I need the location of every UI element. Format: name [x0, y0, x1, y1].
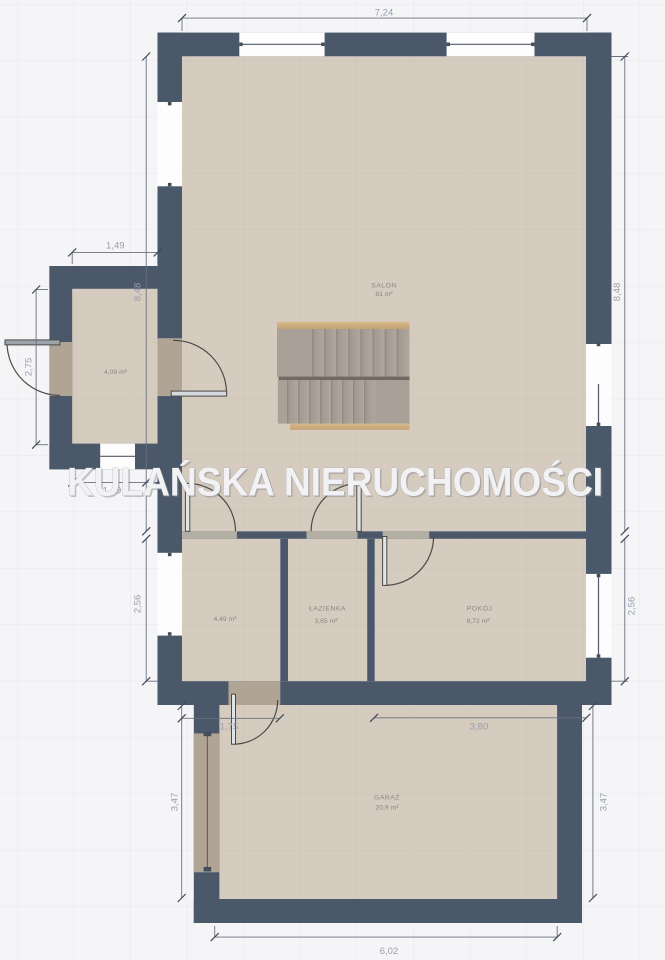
svg-text:POKÓJ: POKÓJ	[467, 604, 493, 613]
svg-text:9,72 m²: 9,72 m²	[466, 618, 490, 625]
svg-text:ŁAZIENKA: ŁAZIENKA	[309, 606, 346, 613]
svg-text:3,47: 3,47	[170, 793, 181, 812]
svg-text:2,56: 2,56	[627, 597, 638, 616]
svg-text:7,24: 7,24	[375, 8, 394, 19]
svg-text:4,09 m²: 4,09 m²	[104, 369, 128, 376]
svg-text:8,48: 8,48	[612, 283, 623, 302]
svg-text:3,80: 3,80	[470, 722, 489, 733]
svg-text:20,9 m²: 20,9 m²	[375, 805, 399, 812]
svg-text:1,75: 1,75	[220, 722, 239, 733]
svg-text:SALON: SALON	[371, 283, 397, 290]
svg-text:8,48: 8,48	[133, 283, 144, 302]
svg-text:2,75: 2,75	[24, 358, 35, 377]
svg-text:GARAŻ: GARAŻ	[374, 793, 400, 802]
svg-text:KULAŃSKA NIERUCHOMOŚCI: KULAŃSKA NIERUCHOMOŚCI	[67, 459, 603, 505]
svg-text:4,49 m²: 4,49 m²	[213, 616, 237, 623]
svg-text:1,49: 1,49	[106, 240, 125, 251]
svg-text:3,47: 3,47	[599, 793, 610, 812]
svg-text:3,65 m²: 3,65 m²	[314, 618, 338, 625]
svg-text:2,56: 2,56	[133, 595, 144, 614]
svg-text:61 m²: 61 m²	[375, 291, 393, 298]
svg-text:6,02: 6,02	[380, 946, 399, 957]
